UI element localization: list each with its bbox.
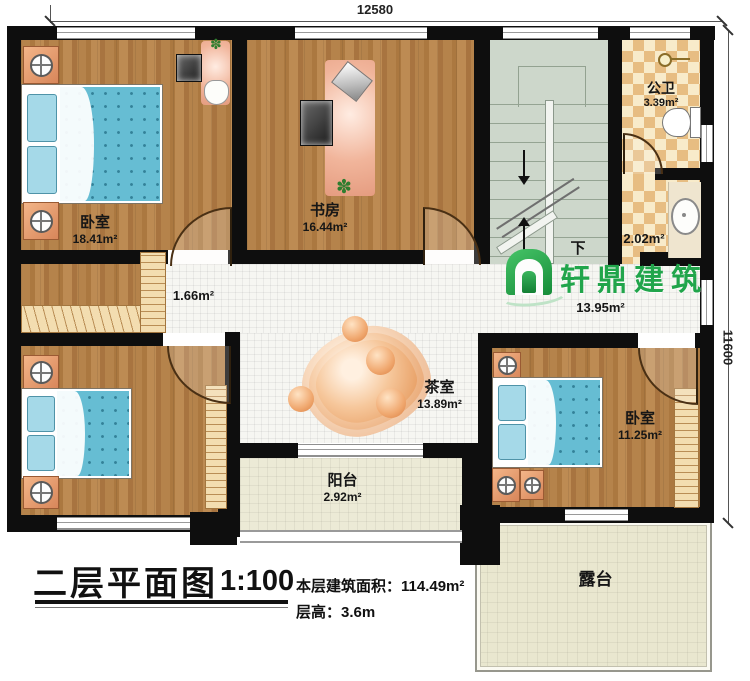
shower-icon bbox=[658, 53, 672, 67]
dimension-top-label: 12580 bbox=[330, 2, 420, 17]
wall-tea-s2 bbox=[423, 443, 478, 458]
label-bedroom2: 卧室11.25m² bbox=[590, 410, 690, 442]
stair-arrow-down-head-icon bbox=[518, 176, 530, 191]
lamp-icon bbox=[524, 477, 541, 494]
pillow bbox=[27, 94, 57, 142]
window-bath-right bbox=[701, 125, 713, 162]
pouf-icon bbox=[342, 316, 368, 342]
window-bedroom2-terrace bbox=[565, 509, 628, 521]
chair-icon bbox=[204, 80, 229, 105]
label-bedroom1: 卧室18.41m² bbox=[40, 214, 150, 246]
page-title: 二层平面图 bbox=[33, 556, 218, 605]
window-tea-balcony bbox=[298, 444, 423, 457]
sink-drain-icon bbox=[682, 213, 686, 217]
stair-center-rail bbox=[545, 100, 554, 264]
wall-bedroom3-n bbox=[7, 332, 163, 346]
window-bath-top bbox=[630, 27, 690, 39]
label-tea-room: 茶室13.89m² bbox=[392, 379, 487, 411]
wall-bedroom2-n2 bbox=[695, 333, 714, 348]
title-rule-thick bbox=[35, 600, 288, 604]
double-bed-bedroom1 bbox=[21, 84, 163, 204]
pillow bbox=[27, 435, 55, 471]
label-corridor: 1.66m² bbox=[156, 288, 231, 304]
bed-sheet bbox=[60, 87, 94, 201]
dimension-right-label: 11600 bbox=[721, 318, 736, 378]
pillow bbox=[498, 424, 526, 460]
wall-tea-s1 bbox=[225, 443, 298, 458]
plant-icon: ✽ bbox=[210, 36, 222, 53]
nightstand bbox=[23, 46, 59, 84]
bed-sheet bbox=[57, 391, 85, 476]
pouf-icon bbox=[366, 346, 395, 375]
brand-watermark: 轩鼎建筑 bbox=[560, 255, 708, 299]
wardrobe-bedroom2 bbox=[674, 388, 699, 508]
dimension-right-line bbox=[728, 30, 729, 523]
tv-icon bbox=[176, 54, 202, 82]
label-wash-area: 2.02m² bbox=[608, 231, 680, 247]
wall-bedroom1-study bbox=[232, 40, 247, 250]
floor-plan-canvas: 下 ✽ ✽ bbox=[0, 0, 750, 681]
wall-bedroom2-w bbox=[478, 333, 492, 523]
floor-area-text: 本层建筑面积：114.49m² bbox=[296, 575, 464, 596]
window-study-top bbox=[295, 27, 427, 39]
lamp-icon bbox=[30, 481, 53, 504]
sink-icon bbox=[671, 198, 700, 235]
label-terrace: 露台 bbox=[548, 570, 643, 590]
stair-arrow-down-icon bbox=[523, 150, 525, 176]
bed-sheet bbox=[528, 380, 556, 465]
pillow bbox=[498, 385, 526, 421]
lamp-icon bbox=[498, 356, 517, 375]
window-stairs-top bbox=[503, 27, 598, 39]
pouf-icon bbox=[288, 386, 314, 412]
nightstand bbox=[520, 470, 544, 500]
lamp-icon bbox=[30, 361, 53, 384]
toilet-bowl-icon bbox=[662, 108, 691, 137]
wall-bedroom2-n1 bbox=[478, 333, 638, 348]
dimension-top-line bbox=[50, 21, 722, 22]
nightstand bbox=[23, 476, 59, 509]
label-balcony: 阳台2.92m² bbox=[295, 472, 390, 504]
balcony-railing bbox=[240, 530, 462, 543]
wall-study-stairs bbox=[474, 40, 490, 264]
nightstand bbox=[23, 355, 59, 390]
label-study: 书房16.44m² bbox=[270, 202, 380, 234]
wall-corridor-n2 bbox=[228, 250, 423, 264]
terrace-floor bbox=[475, 520, 712, 672]
title-rule-thin bbox=[35, 607, 288, 608]
wardrobe-bedroom1 bbox=[21, 305, 142, 333]
double-bed-bedroom2 bbox=[492, 377, 603, 468]
toilet-tank-icon bbox=[690, 107, 701, 138]
pillow bbox=[27, 396, 55, 432]
computer-monitor-icon bbox=[300, 100, 333, 146]
drawing-scale: 1:100 bbox=[220, 565, 294, 598]
label-public-bath: 公卫3.39m² bbox=[620, 80, 702, 110]
window-bedroom1-top bbox=[57, 27, 195, 39]
lamp-icon bbox=[30, 54, 53, 77]
nightstand bbox=[493, 352, 521, 379]
shower-arm-icon bbox=[670, 58, 690, 60]
plant-icon: ✽ bbox=[336, 176, 352, 199]
double-bed-bedroom3 bbox=[21, 388, 132, 479]
wall-terrace-corner bbox=[460, 505, 500, 565]
nightstand bbox=[492, 468, 520, 502]
stair-arrow-up-head-icon bbox=[518, 211, 530, 226]
window-bedroom3-bottom bbox=[57, 517, 190, 530]
label-hall: 13.95m² bbox=[558, 300, 643, 316]
pillow bbox=[27, 146, 57, 194]
lamp-icon bbox=[497, 476, 516, 495]
floor-height-text: 层高：3.6m bbox=[296, 601, 375, 622]
wall-left bbox=[7, 40, 21, 532]
